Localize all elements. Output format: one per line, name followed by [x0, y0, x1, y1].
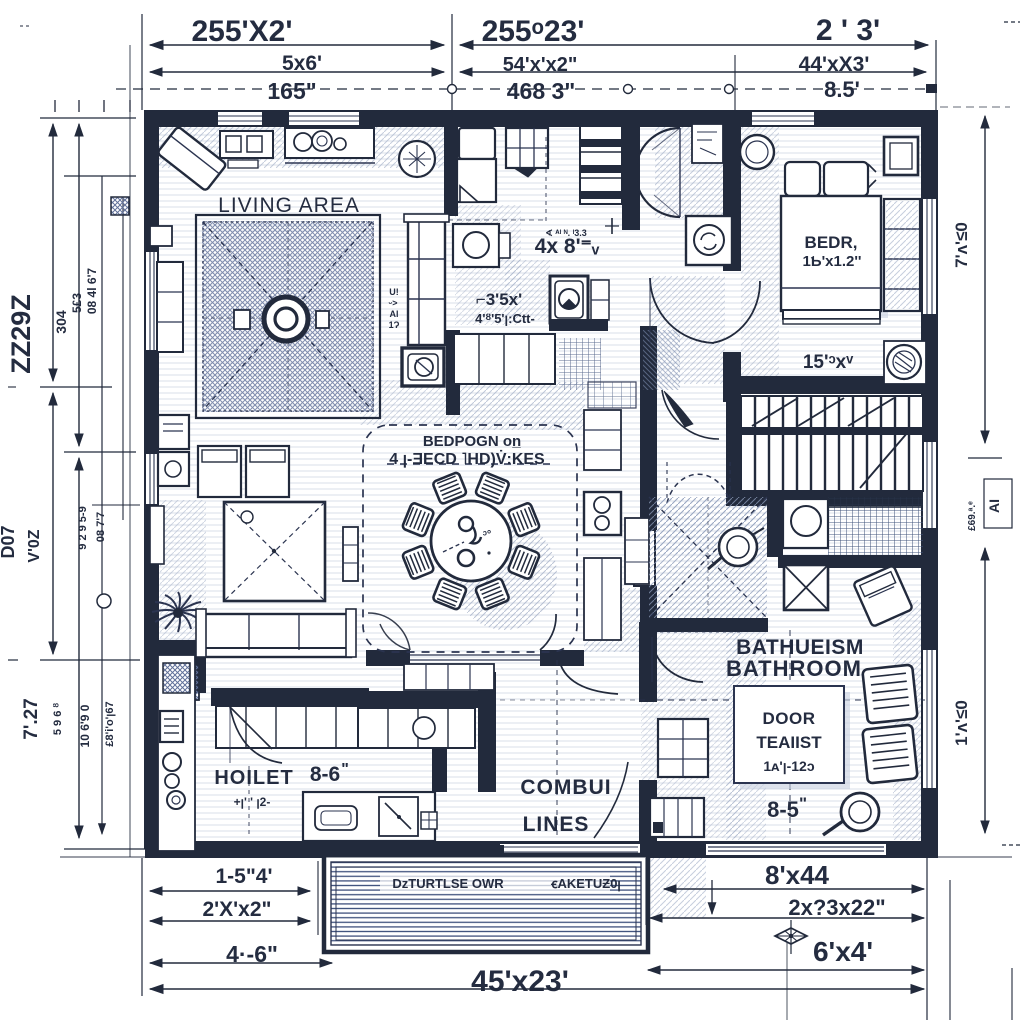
svg-text:BATHROOM: BATHROOM — [726, 656, 862, 681]
svg-text:08 7'7: 08 7'7 — [95, 512, 107, 542]
svg-text:BEDR,: BEDR, — [805, 233, 858, 252]
svg-text:ZZ29Z: ZZ29Z — [6, 294, 36, 374]
svg-text:2'X'x2": 2'X'x2" — [203, 898, 272, 921]
svg-text:1-5"4': 1-5"4' — [216, 865, 273, 888]
svg-text:08 4l 6'7: 08 4l 6'7 — [85, 268, 99, 315]
svg-text:DzTURTLSE OWR: DzTURTLSE OWR — [392, 876, 504, 891]
svg-text:BEDPOGN on̲: BEDPOGN on̲ — [423, 433, 522, 450]
svg-text:8-6: 8-6 — [310, 763, 340, 786]
svg-text:5 9 6 ᴽ: 5 9 6 ᴽ — [52, 703, 64, 736]
svg-text:ꞓAKETUƵ0ꞁ: ꞓAKETUƵ0ꞁ — [550, 876, 621, 892]
svg-text:ᵓ°: ᵓ° — [483, 529, 492, 541]
svg-text:+ꞁ' ' ꞁ2-: +ꞁ' ' ꞁ2- — [234, 795, 271, 809]
svg-text:": " — [799, 794, 807, 813]
svg-text:LINES: LINES — [523, 813, 590, 836]
svg-text:7'ᴧ'≤0: 7'ᴧ'≤0 — [952, 222, 971, 268]
svg-text:∢ ᴬᴵ ᴺ. ᴵ3.3: ∢ ᴬᴵ ᴺ. ᴵ3.3 — [545, 228, 587, 238]
svg-text:45'x23': 45'x23' — [471, 965, 569, 998]
svg-text:TEAIIST: TEAIIST — [756, 733, 822, 752]
svg-text:255'X2': 255'X2' — [191, 15, 292, 48]
svg-text:D07: D07 — [0, 525, 18, 558]
svg-text:6'x4': 6'x4' — [813, 936, 873, 967]
svg-text:2x?3x22": 2x?3x22" — [788, 895, 885, 920]
svg-text:HOILET: HOILET — [214, 767, 293, 789]
svg-text:468 3": 468 3" — [507, 78, 575, 104]
svg-text:15'ᵓxᵛ: 15'ᵓxᵛ — [803, 352, 853, 373]
svg-text:7'.27: 7'.27 — [21, 698, 42, 740]
svg-text:Al: Al — [390, 309, 399, 319]
svg-text:2 ' 3': 2 ' 3' — [816, 14, 880, 47]
svg-text:1ᴀ'ꞁ-12ᴐ: 1ᴀ'ꞁ-12ᴐ — [763, 758, 814, 775]
svg-text:£8'i'o'ꞁ67: £8'i'o'ꞁ67 — [104, 701, 116, 746]
svg-text:4 ꞁ-ƎECD ˥HD)V̇:KES: 4 ꞁ-ƎECD ˥HD)V̇:KES — [389, 450, 545, 468]
svg-text:": " — [341, 761, 349, 778]
svg-text:⌐3'5x': ⌐3'5x' — [476, 290, 522, 309]
svg-text:1Ɂ: 1Ɂ — [389, 320, 400, 330]
svg-text:ᵕ>: ᵕ> — [389, 298, 398, 308]
svg-text:4x 8'⁼ᵥ: 4x 8'⁼ᵥ — [535, 235, 600, 258]
svg-text:U!: U! — [389, 287, 399, 297]
svg-text:304: 304 — [53, 310, 69, 334]
svg-text:8'x44: 8'x44 — [765, 860, 830, 890]
svg-text:165": 165" — [267, 78, 316, 104]
svg-text:£69.ᵃ.ᵉ: £69.ᵃ.ᵉ — [967, 501, 978, 531]
svg-text:1'ᴧ'≤0: 1'ᴧ'≤0 — [952, 700, 971, 746]
svg-text:LIVING AREA: LIVING AREA — [218, 194, 360, 217]
svg-text:5£3: 5£3 — [70, 293, 84, 313]
svg-text:8-5: 8-5 — [767, 797, 799, 822]
svg-text:10 6'9 0: 10 6'9 0 — [78, 704, 92, 747]
svg-text:AI: AI — [986, 499, 1002, 513]
svg-text:1Ƅ'x1.2'': 1Ƅ'x1.2'' — [802, 253, 861, 270]
svg-text:255ᵒ23': 255ᵒ23' — [482, 15, 585, 48]
svg-text:4'ᴽ'5'ꞁ:Ctt-: 4'ᴽ'5'ꞁ:Ctt- — [475, 311, 535, 326]
svg-text:V'0Z: V'0Z — [26, 529, 43, 562]
svg-text:DOOR: DOOR — [763, 709, 816, 728]
svg-text:COMBUI: COMBUI — [520, 776, 611, 799]
